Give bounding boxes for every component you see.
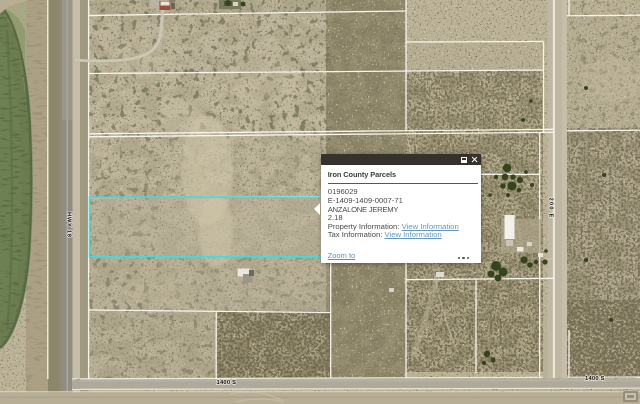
svg-text:HWY 18: HWY 18 (66, 212, 72, 238)
svg-text:1400 S: 1400 S (585, 376, 605, 382)
svg-text:1400 S: 1400 S (217, 380, 237, 386)
svg-text:200 E: 200 E (548, 198, 554, 218)
